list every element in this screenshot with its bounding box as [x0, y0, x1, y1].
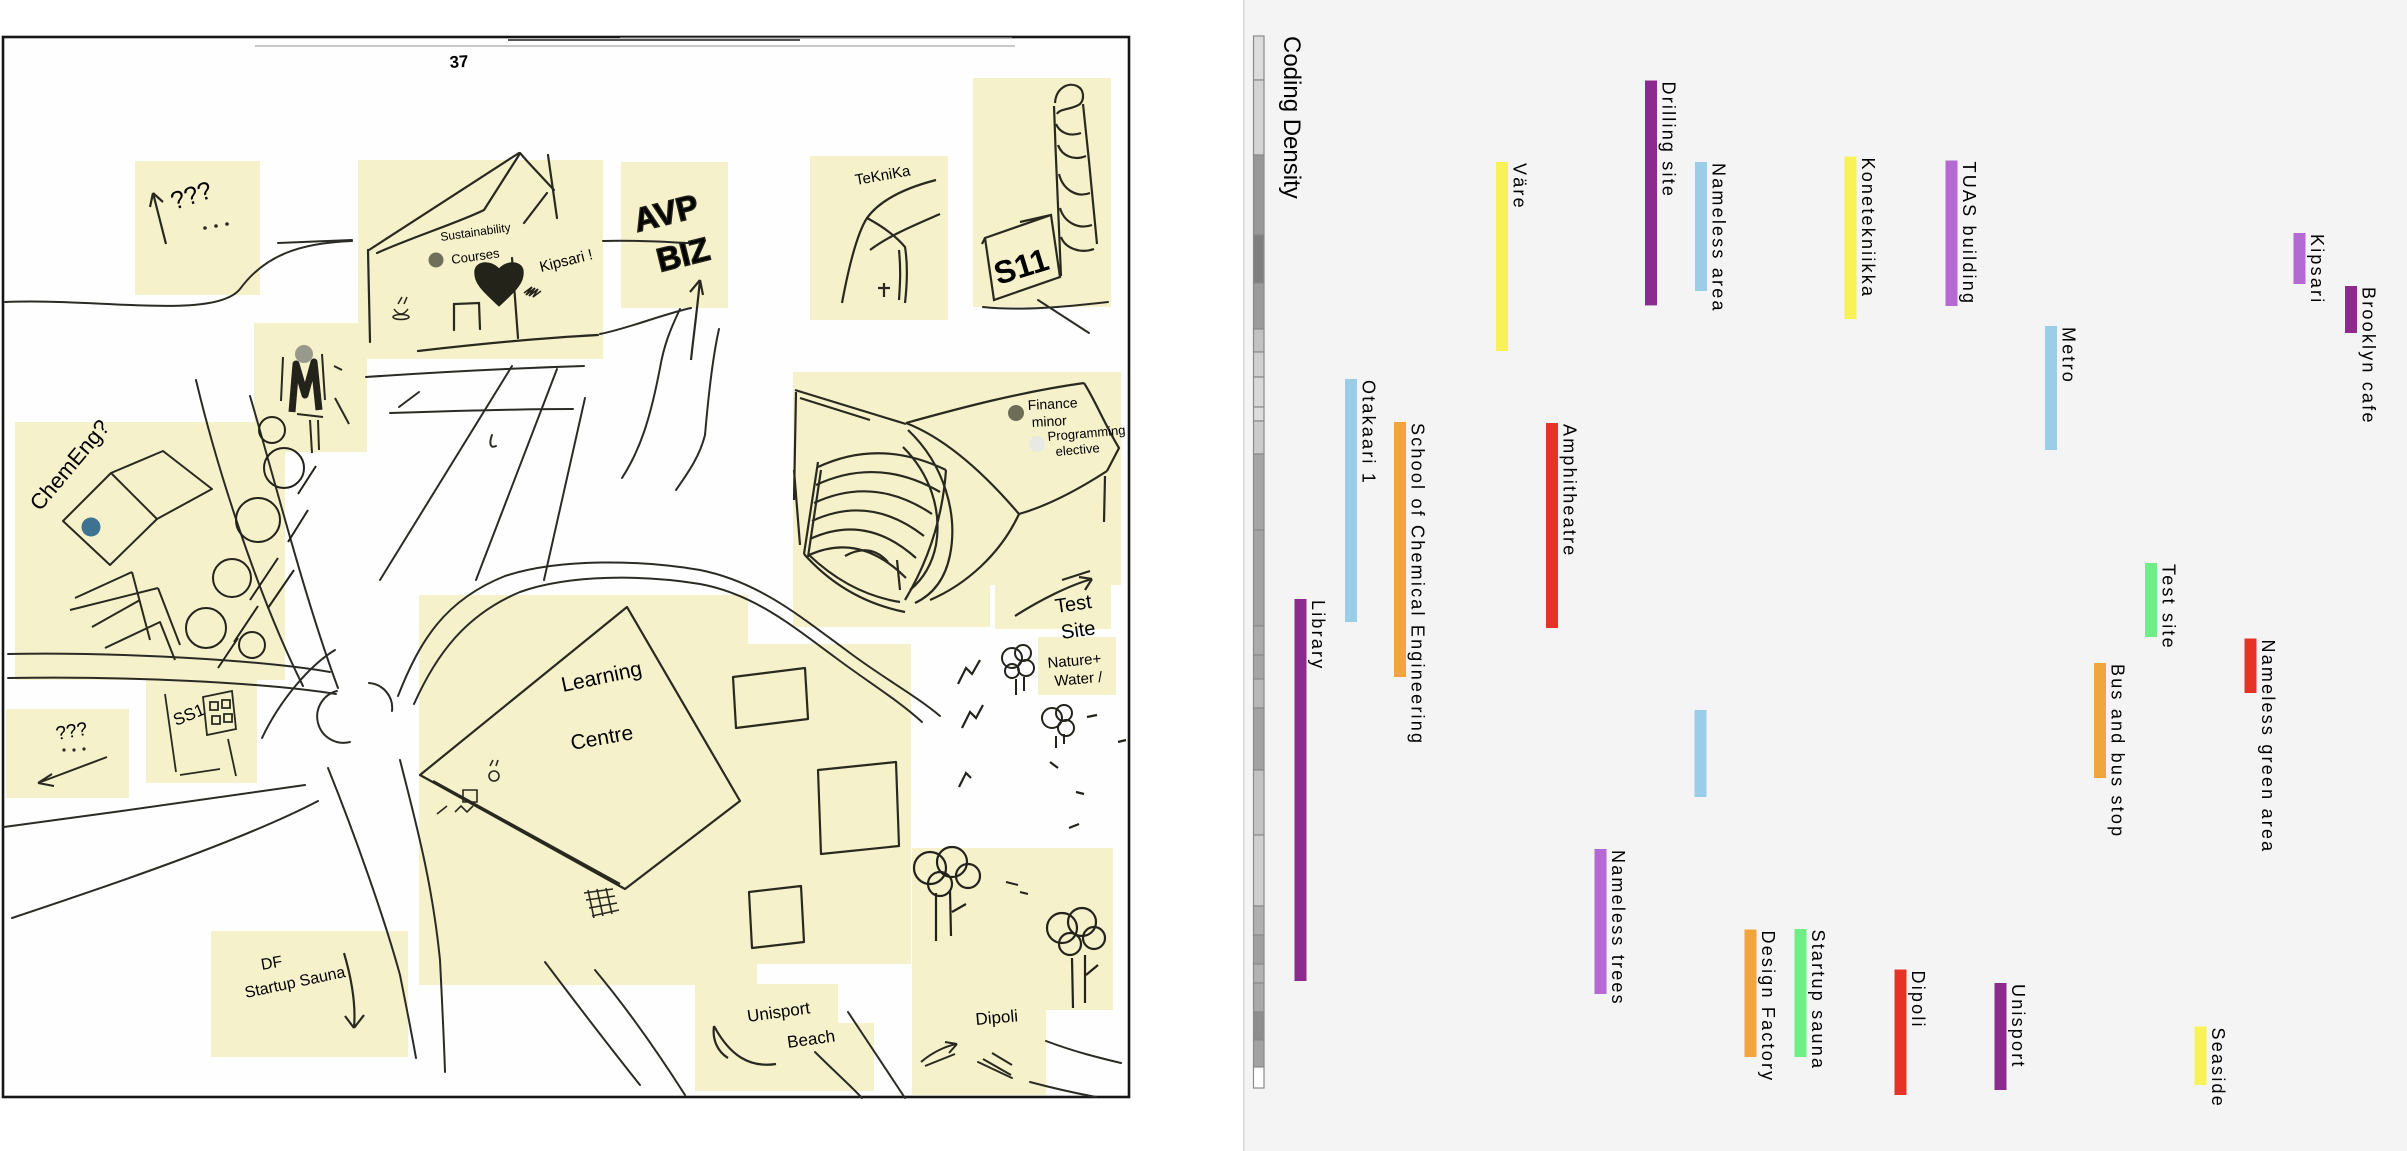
svg-text:Drilling site: Drilling site	[1659, 82, 1679, 199]
svg-text:Dipoli: Dipoli	[1908, 971, 1928, 1029]
svg-text:Nameless green area: Nameless green area	[2258, 640, 2278, 854]
svg-text:Test site: Test site	[2159, 564, 2179, 650]
svg-text:Nameless area: Nameless area	[1709, 163, 1729, 313]
svg-text:Coding Density: Coding Density	[1278, 36, 1305, 199]
svg-text:Startup sauna: Startup sauna	[1808, 930, 1828, 1071]
svg-text:TUAS building: TUAS building	[1959, 162, 1979, 306]
svg-text:Finance: Finance	[1027, 394, 1078, 413]
svg-text:37: 37	[449, 52, 469, 72]
svg-text:Library: Library	[1308, 600, 1328, 670]
svg-text:Kipsari: Kipsari	[2307, 234, 2327, 304]
svg-text:Brooklyn cafe: Brooklyn cafe	[2359, 287, 2379, 425]
svg-text:Unisport: Unisport	[2008, 984, 2028, 1069]
svg-text:Seaside: Seaside	[2208, 1028, 2228, 1108]
svg-text:Metro: Metro	[2059, 327, 2079, 384]
svg-text:Bus and bus stop: Bus and bus stop	[2108, 664, 2128, 838]
svg-text:Amphitheatre: Amphitheatre	[1560, 424, 1580, 557]
svg-text:Otakaari 1: Otakaari 1	[1359, 380, 1379, 485]
svg-text:Dipoli: Dipoli	[975, 1006, 1019, 1029]
svg-text:Väre: Väre	[1510, 163, 1530, 210]
svg-text:Design Factory: Design Factory	[1758, 931, 1778, 1083]
svg-text:Konetekniikka: Konetekniikka	[1858, 158, 1878, 299]
svg-text:School of Chemical Engineering: School of Chemical Engineering	[1408, 423, 1428, 745]
svg-text:Nameless trees: Nameless trees	[1608, 850, 1628, 1006]
